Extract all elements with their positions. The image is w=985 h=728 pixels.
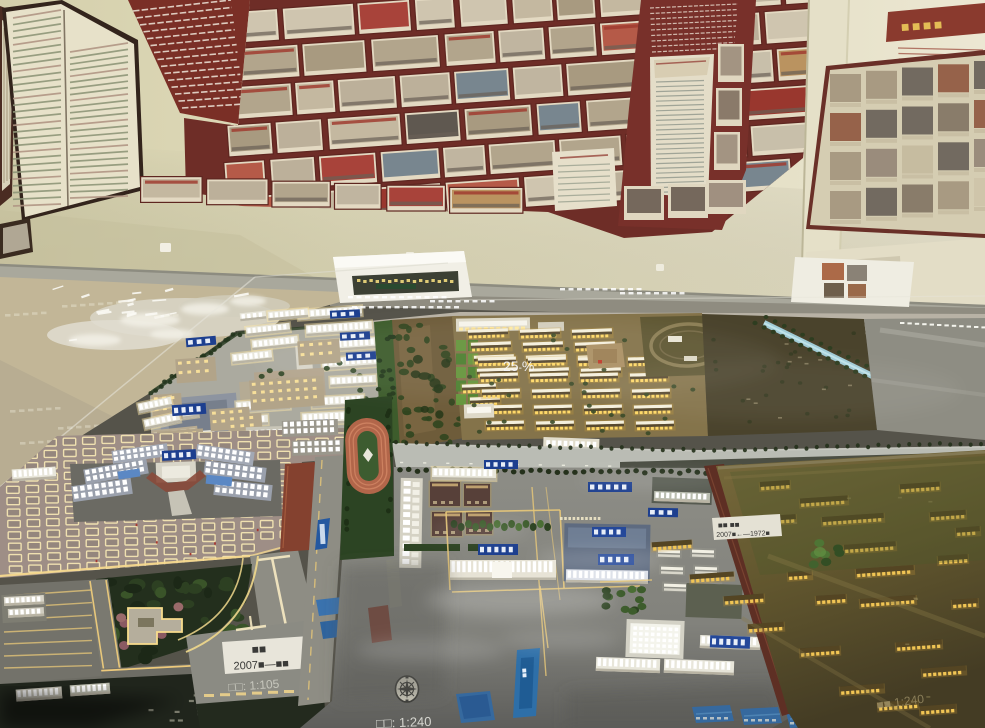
svg-text:■■ ■■: ■■ ■■ [718,520,740,530]
svg-text:■■■■: ■■■■ [900,16,945,35]
svg-text:■■: ■■ [251,642,266,657]
svg-text:□□: 1:240: □□: 1:240 [376,714,432,728]
svg-text:■■: ■■ [520,668,530,678]
